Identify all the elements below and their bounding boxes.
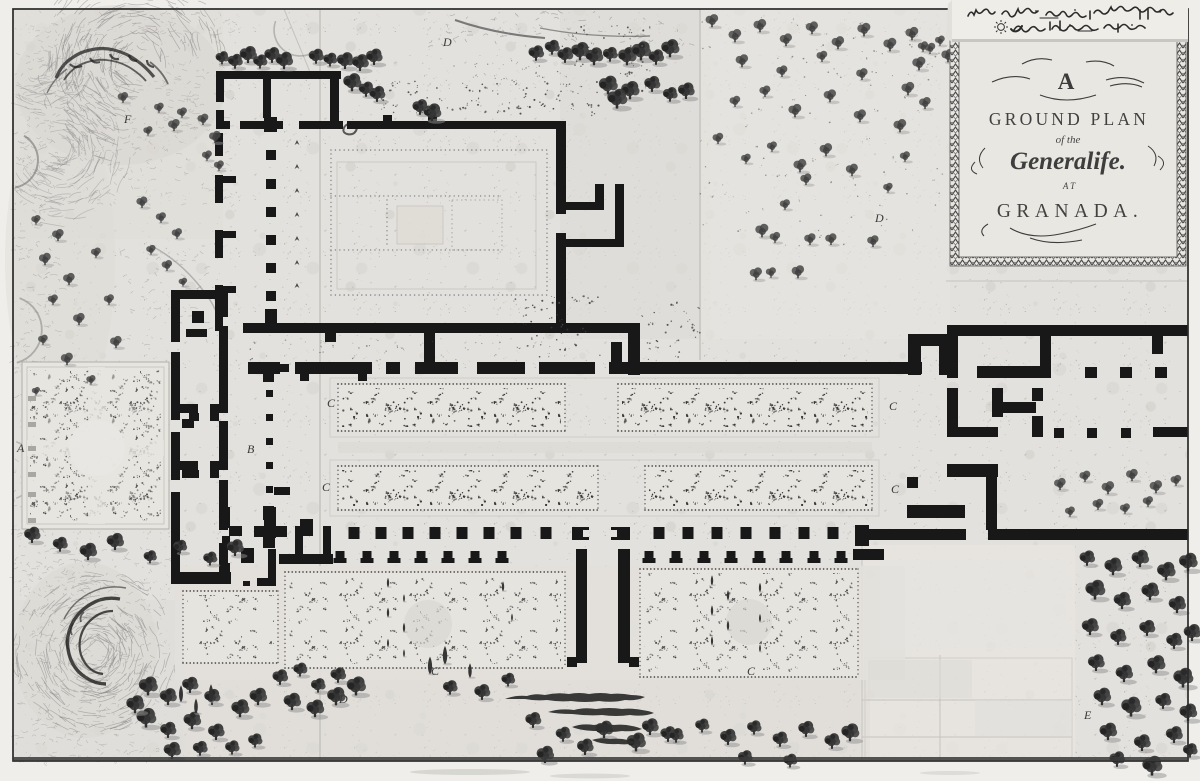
svg-text:C: C — [747, 664, 756, 678]
svg-text:F: F — [123, 112, 132, 126]
svg-text:Generalife.: Generalife. — [1010, 148, 1126, 175]
svg-text:GRANADA.: GRANADA. — [997, 201, 1143, 222]
svg-text:C: C — [431, 664, 440, 678]
svg-text:C: C — [891, 482, 900, 496]
svg-text:E: E — [1083, 708, 1092, 722]
svg-text:A: A — [1058, 69, 1075, 94]
svg-text:of the: of the — [1056, 134, 1081, 146]
svg-text:AT: AT — [1062, 181, 1077, 191]
svg-text:C: C — [889, 399, 898, 413]
svg-text:GROUND PLAN: GROUND PLAN — [989, 109, 1149, 129]
svg-text:C: C — [327, 396, 336, 410]
svg-text:A: A — [16, 441, 25, 455]
svg-text:D: D — [874, 211, 884, 225]
svg-text:D: D — [338, 692, 348, 706]
svg-text:C: C — [322, 480, 331, 494]
svg-text:B: B — [247, 442, 255, 456]
svg-text:D: D — [442, 35, 452, 49]
